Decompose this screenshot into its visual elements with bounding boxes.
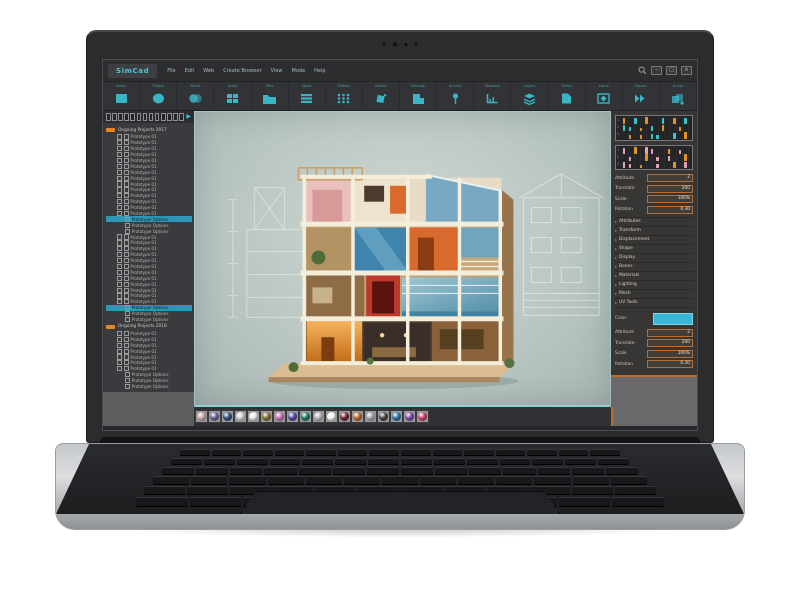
material-sphere: [275, 412, 285, 422]
circle-tool-label: Ellipse: [153, 84, 164, 88]
tree-item-label: Prototype 01: [130, 182, 156, 187]
keyboard-key: [458, 476, 494, 485]
frame-strip[interactable]: ▶: [103, 111, 194, 123]
sequencer-grid-2[interactable]: 123: [615, 145, 693, 171]
properties-bottom: Attribute2Translate200Scale100%Rotation0…: [615, 329, 693, 369]
keyboard-row: [153, 476, 647, 485]
laptop-base: [55, 443, 745, 530]
checkbox-icon[interactable]: [117, 354, 122, 359]
section-label: Attributes: [619, 219, 641, 224]
color-row: Color: [615, 313, 693, 325]
rotate-tool-icon: [373, 90, 388, 109]
section-label: Mesh: [619, 291, 631, 296]
keyboard-key: [598, 458, 629, 466]
bottom-bar: [103, 407, 697, 426]
toolbar-square-tool[interactable]: Select: [103, 82, 140, 110]
sheet-tool-label: Sheet: [562, 84, 572, 88]
keyboard-row: [180, 449, 620, 456]
film-frame[interactable]: [118, 113, 123, 121]
tree-option-label: Prototype Options: [132, 311, 169, 316]
checkbox-icon[interactable]: [117, 240, 122, 245]
keyboard-key: [534, 476, 570, 485]
section-bones[interactable]: ▸Bones: [615, 263, 693, 272]
material-sphere: [197, 412, 207, 422]
checkbox-icon[interactable]: [124, 343, 129, 348]
checkbox-icon[interactable]: [117, 331, 122, 336]
list-tool-label: Stack: [302, 84, 312, 88]
toolbar-sheet-tool[interactable]: Sheet: [549, 82, 586, 110]
checkbox-icon[interactable]: [117, 205, 122, 210]
material-swatch[interactable]: [312, 410, 325, 423]
sequencer-bar: [656, 157, 658, 161]
cad-app-window: SimCad FileEditWebCreate BrowserViewMode…: [103, 60, 697, 430]
tree-item-label: Prototype 01: [130, 343, 156, 348]
sequencer-grid-1[interactable]: 123: [615, 115, 693, 141]
keyboard-key: [420, 476, 456, 485]
checkbox-icon[interactable]: [124, 258, 129, 263]
keyboard-key: [433, 449, 463, 456]
sequencer-bar: [623, 148, 625, 154]
sequencer-bar: [673, 118, 675, 124]
menu-items: FileEditWebCreate BrowserViewModeHelp: [167, 68, 638, 74]
checkbox-icon[interactable]: [117, 252, 122, 257]
material-palette: [194, 407, 611, 426]
play-icon[interactable]: ▶: [186, 114, 191, 120]
bottombar-left: [103, 407, 194, 426]
film-frame[interactable]: [130, 113, 135, 121]
checkbox-icon[interactable]: [124, 252, 129, 257]
toolbar-circle-tool[interactable]: Ellipse: [140, 82, 177, 110]
checkbox-icon[interactable]: [117, 187, 122, 192]
keyboard-key: [144, 486, 185, 495]
shape-tool-icon: [411, 90, 426, 109]
film-frame[interactable]: [106, 113, 111, 121]
search-icon[interactable]: [638, 66, 647, 75]
tree-item-label: Prototype 01: [130, 288, 156, 293]
sequencer-bar: [684, 118, 686, 125]
material-sphere: [314, 412, 324, 422]
checkbox-icon[interactable]: [124, 193, 129, 198]
properties-panel: 123123 Attribute2Translate200Scale100%Ro…: [611, 111, 697, 407]
section-mesh[interactable]: ▸Mesh: [615, 290, 693, 299]
checkbox-icon[interactable]: [124, 366, 129, 371]
keyboard-key: [344, 476, 380, 485]
sequencer-bar: [623, 118, 625, 124]
checkbox-icon[interactable]: [124, 246, 129, 251]
material-swatch[interactable]: [390, 410, 403, 423]
chevron-right-icon: ▸: [615, 255, 617, 260]
house-model: [195, 112, 610, 405]
keyboard-key: [204, 458, 235, 466]
checkbox-icon[interactable]: [124, 234, 129, 239]
pattern-tool-label: Pattern: [338, 84, 351, 88]
checkbox-icon[interactable]: [117, 337, 122, 342]
checkbox-icon[interactable]: [124, 240, 129, 245]
checkbox-icon[interactable]: [124, 187, 129, 192]
sequencer-bar: [629, 135, 631, 139]
keyboard-key: [572, 467, 604, 475]
bottom-translate-field[interactable]: 200: [647, 339, 693, 347]
properties-top: Attribute2Translate200Scale100%Rotation0…: [615, 174, 693, 214]
folder-tool-label: Files: [266, 84, 274, 88]
project-badge: [106, 325, 115, 329]
checkbox-icon[interactable]: [117, 343, 122, 348]
section-label: Transform: [619, 228, 641, 233]
film-frame[interactable]: [161, 113, 166, 121]
section-shape[interactable]: ▸Shape: [615, 245, 693, 254]
checkbox-icon[interactable]: [124, 140, 129, 145]
checkbox-icon[interactable]: [124, 199, 129, 204]
material-sphere: [353, 412, 363, 422]
checkbox-icon[interactable]: [117, 199, 122, 204]
top-scale-field[interactable]: 100%: [647, 195, 693, 203]
checkbox-icon[interactable]: [117, 140, 122, 145]
sequencer-row: 2: [617, 124, 691, 131]
checkbox-icon[interactable]: [125, 378, 130, 383]
bottom-rotation-field[interactable]: 0.30: [647, 360, 693, 368]
material-swatch[interactable]: [338, 410, 351, 423]
tree-item-label: Prototype 01: [130, 240, 156, 245]
film-frame[interactable]: [179, 113, 184, 121]
sequencer-row: 1: [617, 117, 691, 124]
section-lighting[interactable]: ▸Lighting: [615, 281, 693, 290]
section-displacement[interactable]: ▸Displacement: [615, 236, 693, 245]
tree-item-label: Prototype 01: [130, 349, 156, 354]
material-swatch[interactable]: [299, 410, 312, 423]
toolbar-list-tool[interactable]: Stack: [289, 82, 326, 110]
property-label: Rotation: [615, 362, 633, 367]
section-materials[interactable]: ▸Materials: [615, 272, 693, 281]
checkbox-icon[interactable]: [117, 181, 122, 186]
property-label: Attribute: [615, 330, 634, 335]
checkbox-icon[interactable]: [117, 299, 122, 304]
sequencer-bar: [640, 165, 642, 169]
checkbox-icon[interactable]: [124, 282, 129, 287]
material-swatch[interactable]: [208, 410, 221, 423]
keyboard-key: [243, 449, 273, 456]
material-sphere: [405, 412, 415, 422]
tree-group-title: Ongoing Projects 2017: [118, 128, 167, 133]
tree-option-label: Prototype Options: [132, 229, 169, 234]
sequencer-bar: [623, 125, 625, 131]
tree-item-label: Prototype 01: [130, 355, 156, 360]
checkbox-icon[interactable]: [124, 158, 129, 163]
keyboard-deck: [56, 444, 744, 514]
tree-group-header[interactable]: Ongoing Projects 2017: [106, 126, 192, 134]
checkbox-icon[interactable]: [117, 152, 122, 157]
keyboard-key: [230, 467, 262, 475]
minimize-button[interactable]: –: [651, 66, 662, 75]
toolbar-export-tool[interactable]: Export: [623, 82, 660, 110]
toolbar-focus-tool[interactable]: Focus: [586, 82, 623, 110]
checkbox-icon[interactable]: [124, 276, 129, 281]
viewport-canvas[interactable]: [194, 111, 611, 407]
checkbox-icon[interactable]: [117, 246, 122, 251]
tree-option-label: Prototype Options: [132, 217, 169, 222]
checkbox-icon[interactable]: [117, 170, 122, 175]
section-attributes[interactable]: ▸Attributes: [615, 218, 693, 227]
keyboard-key: [229, 476, 265, 485]
screen: SimCad FileEditWebCreate BrowserViewMode…: [103, 60, 697, 430]
tree-item-label: Prototype 01: [130, 299, 156, 304]
ir-sensor-dot: [383, 43, 386, 46]
sequencer-lane: [623, 162, 691, 169]
keyboard-key: [573, 476, 609, 485]
checkbox-icon[interactable]: [124, 264, 129, 269]
tree-item-label: Prototype 01: [130, 176, 156, 181]
bottom-translate-row: Translate200: [615, 339, 693, 347]
checkbox-icon[interactable]: [125, 217, 130, 222]
toolbar: SelectEllipseBlendArrayFilesStackPattern…: [103, 82, 697, 111]
chevron-right-icon: ▸: [615, 282, 617, 287]
keyboard-key: [611, 476, 647, 485]
tree-group-title: Ongoing Projects 2018: [118, 324, 167, 329]
sequencer-bar: [656, 164, 658, 168]
checkbox-icon[interactable]: [117, 349, 122, 354]
checkbox-icon[interactable]: [117, 276, 122, 281]
toolbar-layers-tool[interactable]: Layers: [511, 82, 548, 110]
top-translate-field[interactable]: 200: [647, 185, 693, 193]
tree-group-header[interactable]: Ongoing Projects 2018: [106, 323, 192, 331]
keyboard-key: [612, 497, 664, 507]
material-swatch[interactable]: [221, 410, 234, 423]
top-rotation-field[interactable]: 0.30: [647, 206, 693, 214]
checkbox-icon[interactable]: [125, 317, 130, 322]
tree-item-label: Prototype 01: [130, 331, 156, 336]
tree-item-label: Prototype 01: [130, 152, 156, 157]
material-swatch[interactable]: [416, 410, 429, 423]
property-label: Attribute: [615, 176, 634, 181]
toolbar-blend-tool[interactable]: Blend: [177, 82, 214, 110]
maximize-button[interactable]: □: [666, 66, 677, 75]
sequencer-lane: [623, 132, 691, 139]
keyboard-key: [464, 449, 494, 456]
checkbox-icon[interactable]: [117, 164, 122, 169]
tree-option-label: Prototype Options: [132, 305, 169, 310]
checkbox-icon[interactable]: [124, 181, 129, 186]
sequencer-bar: [623, 162, 625, 168]
keyboard-row: [162, 467, 638, 475]
checkbox-icon[interactable]: [117, 288, 122, 293]
checkbox-icon[interactable]: [124, 176, 129, 181]
material-swatch[interactable]: [195, 410, 208, 423]
tree-item-label: Prototype 01: [130, 270, 156, 275]
menu-create-browser[interactable]: Create Browser: [223, 68, 261, 74]
keyboard-key: [270, 458, 301, 466]
film-frame[interactable]: [155, 113, 160, 121]
export-tool-label: Export: [635, 84, 646, 88]
keyboard-key: [338, 449, 368, 456]
checkbox-icon[interactable]: [124, 299, 129, 304]
checkbox-icon[interactable]: [124, 170, 129, 175]
chevron-right-icon: ▸: [615, 246, 617, 251]
tree-item-label: Prototype 01: [130, 246, 156, 251]
toolbar-group-tool[interactable]: Group: [660, 82, 697, 110]
chevron-right-icon: ▸: [615, 219, 617, 224]
checkbox-icon[interactable]: [125, 311, 130, 316]
menu-edit[interactable]: Edit: [185, 68, 195, 74]
sequencer-bar: [640, 128, 642, 132]
bottom-scale-row: Scale100%: [615, 350, 693, 358]
checkbox-icon[interactable]: [117, 258, 122, 263]
project-tree: Ongoing Projects 2017Prototype 01Prototy…: [103, 123, 194, 389]
checkbox-icon[interactable]: [124, 331, 129, 336]
keyboard-key: [196, 467, 228, 475]
toolbar-anchor-tool[interactable]: Anchor: [437, 82, 474, 110]
checkbox-icon[interactable]: [124, 360, 129, 365]
toolbar-rotate-tool[interactable]: Rotate: [363, 82, 400, 110]
menu-mode[interactable]: Mode: [292, 68, 306, 74]
checkbox-icon[interactable]: [125, 384, 130, 389]
bottom-attribute-field[interactable]: 2: [647, 329, 693, 337]
top-rotation-row: Rotation0.30: [615, 206, 693, 214]
sequencer-bar: [684, 162, 686, 169]
material-sphere: [236, 412, 246, 422]
material-swatch[interactable]: [234, 410, 247, 423]
keyboard-key: [237, 458, 268, 466]
tree-item-label: Prototype 01: [130, 205, 156, 210]
section-display[interactable]: ▸Display: [615, 254, 693, 263]
material-swatch[interactable]: [247, 410, 260, 423]
checkbox-icon[interactable]: [124, 293, 129, 298]
toolbar-pattern-tool[interactable]: Pattern: [326, 82, 363, 110]
keyboard-key: [335, 458, 366, 466]
film-frame[interactable]: [112, 113, 117, 121]
checkbox-icon[interactable]: [117, 146, 122, 151]
toolbar-measure-tool[interactable]: Measure: [474, 82, 511, 110]
bottom-rotation-row: Rotation0.30: [615, 360, 693, 368]
menu-file[interactable]: File: [167, 68, 175, 74]
checkbox-icon[interactable]: [124, 152, 129, 157]
section-label: Materials: [619, 273, 639, 278]
checkbox-icon[interactable]: [124, 146, 129, 151]
toolbar-folder-tool[interactable]: Files: [252, 82, 289, 110]
checkbox-icon[interactable]: [117, 134, 122, 139]
sequencer-row: 1: [617, 147, 691, 154]
material-swatch[interactable]: [403, 410, 416, 423]
keyboard-key: [469, 467, 501, 475]
film-frame[interactable]: [173, 113, 178, 121]
film-frame[interactable]: [167, 113, 172, 121]
checkbox-icon[interactable]: [124, 354, 129, 359]
checkbox-icon[interactable]: [117, 360, 122, 365]
measure-tool-icon: [485, 90, 500, 109]
property-label: Scale: [615, 351, 627, 356]
material-swatch[interactable]: [351, 410, 364, 423]
toolbar-shape-tool[interactable]: Extrude: [400, 82, 437, 110]
bottom-attribute-row: Attribute2: [615, 329, 693, 337]
film-frame[interactable]: [124, 113, 129, 121]
material-swatch[interactable]: [286, 410, 299, 423]
property-label: Translate: [615, 186, 635, 191]
checkbox-icon[interactable]: [117, 293, 122, 298]
tree-item-label: Prototype 01: [130, 158, 156, 163]
sequencer-lane: [623, 147, 691, 154]
keyboard-key: [171, 458, 202, 466]
tree-option-label: Prototype Options: [132, 378, 169, 383]
checkbox-icon[interactable]: [124, 337, 129, 342]
sequencer-bar: [651, 134, 653, 139]
keyboard-key: [538, 467, 570, 475]
checkbox-icon[interactable]: [117, 176, 122, 181]
toolbar-grid-tool[interactable]: Array: [214, 82, 251, 110]
section-uv-tools[interactable]: ▸UV Tools: [615, 299, 693, 308]
checkbox-icon[interactable]: [117, 282, 122, 287]
checkbox-icon[interactable]: [117, 193, 122, 198]
film-frame[interactable]: [137, 113, 142, 121]
sequencer-grids: 123123: [615, 115, 693, 170]
checkbox-icon[interactable]: [117, 270, 122, 275]
top-attribute-field[interactable]: 2: [647, 174, 693, 182]
section-label: Display: [619, 255, 635, 260]
color-swatch[interactable]: [653, 313, 693, 325]
blend-tool-icon: [188, 90, 203, 109]
film-frame[interactable]: [143, 113, 148, 121]
menu-view[interactable]: View: [271, 68, 283, 74]
material-sphere: [262, 412, 272, 422]
keyboard-key: [606, 467, 638, 475]
export-tool-icon: [633, 90, 648, 109]
menu-bar: SimCad FileEditWebCreate BrowserViewMode…: [103, 60, 697, 82]
checkbox-icon[interactable]: [117, 264, 122, 269]
checkbox-icon[interactable]: [125, 372, 130, 377]
grid-tool-label: Array: [228, 84, 237, 88]
checkbox-icon[interactable]: [117, 211, 122, 216]
keyboard-key: [435, 467, 467, 475]
keyboard-key: [401, 449, 431, 456]
menu-web[interactable]: Web: [203, 68, 214, 74]
project-sidebar: ▶ Ongoing Projects 2017Prototype 01Proto…: [103, 111, 194, 407]
checkbox-icon[interactable]: [117, 158, 122, 163]
film-frame[interactable]: [149, 113, 154, 121]
checkbox-icon[interactable]: [124, 134, 129, 139]
section-transform[interactable]: ▸Transform: [615, 227, 693, 236]
group-tool-label: Group: [673, 84, 684, 88]
close-button[interactable]: ×: [681, 66, 692, 75]
checkbox-icon[interactable]: [117, 234, 122, 239]
checkbox-icon[interactable]: [117, 366, 122, 371]
material-sphere: [223, 412, 233, 422]
checkbox-icon[interactable]: [125, 305, 130, 310]
checkbox-icon[interactable]: [124, 288, 129, 293]
checkbox-icon[interactable]: [124, 349, 129, 354]
material-swatch[interactable]: [260, 410, 273, 423]
keyboard-key: [500, 458, 531, 466]
bottom-scale-field[interactable]: 100%: [647, 350, 693, 358]
top-translate-row: Translate200: [615, 185, 693, 193]
material-swatch[interactable]: [325, 410, 338, 423]
material-swatch[interactable]: [364, 410, 377, 423]
checkbox-icon[interactable]: [124, 211, 129, 216]
tree-option[interactable]: Prototype Options: [106, 384, 192, 390]
checkbox-icon[interactable]: [125, 223, 130, 228]
folder-tool-icon: [262, 90, 277, 109]
tree-item-label: Prototype 01: [130, 293, 156, 298]
menu-help[interactable]: Help: [314, 68, 325, 74]
checkbox-icon[interactable]: [125, 229, 130, 234]
chevron-right-icon: ▸: [615, 264, 617, 269]
sequencer-bar: [629, 157, 631, 161]
keyboard-row: [171, 458, 629, 466]
checkbox-icon[interactable]: [124, 164, 129, 169]
material-swatch[interactable]: [273, 410, 286, 423]
checkbox-icon[interactable]: [124, 270, 129, 275]
scene: SimCad FileEditWebCreate BrowserViewMode…: [0, 0, 800, 600]
keyboard-key: [559, 449, 589, 456]
rotate-tool-label: Rotate: [375, 84, 386, 88]
material-swatch[interactable]: [377, 410, 390, 423]
checkbox-icon[interactable]: [124, 205, 129, 210]
